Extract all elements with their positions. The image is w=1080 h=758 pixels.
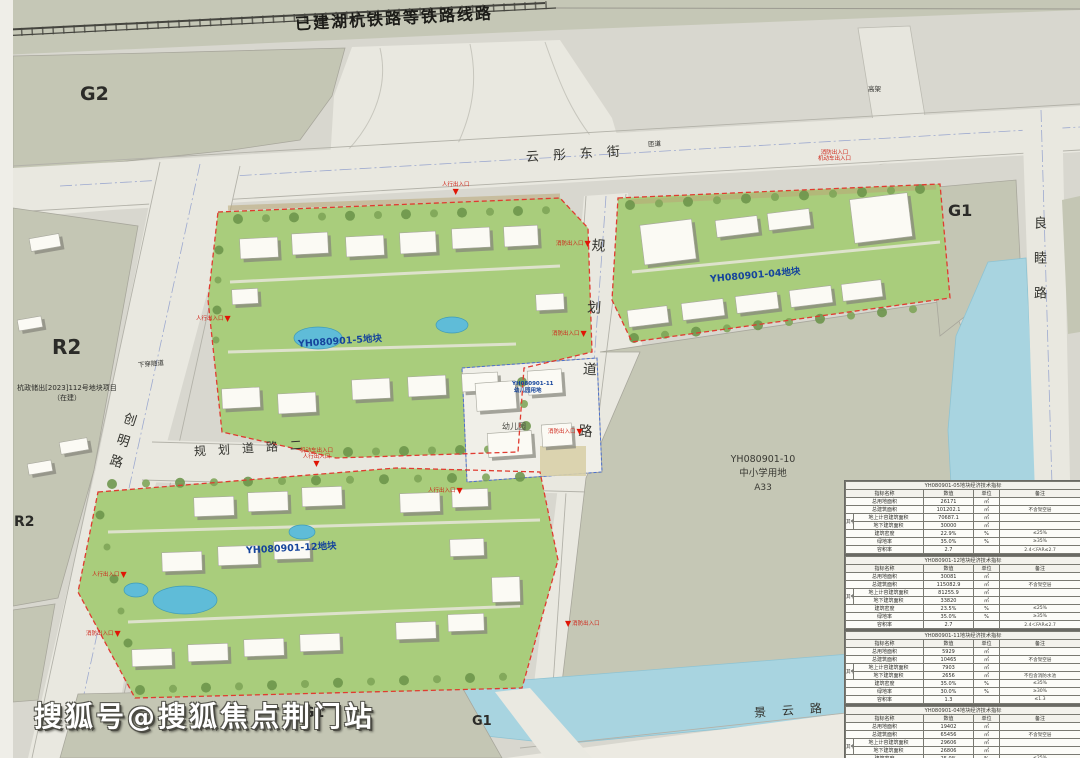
tree — [909, 305, 917, 313]
school-code-label: YH080901-10 — [703, 455, 823, 466]
r2-project-name: 杭政储出[2023]112号地块项目 — [4, 384, 130, 392]
table-cell: 总建筑面积 — [846, 731, 924, 739]
table-cell: 数值 — [924, 565, 974, 573]
table-cell: 地上计容建筑面积 — [854, 589, 924, 597]
table-cell: 总建筑面积 — [846, 656, 924, 664]
table-cell: 地上计容建筑面积 — [854, 664, 924, 672]
table-cell: 35.0% — [924, 680, 974, 688]
building — [188, 643, 229, 661]
table-cell: 绿地率 — [846, 613, 924, 621]
table-cell — [974, 621, 1000, 629]
tree — [318, 213, 326, 221]
building — [400, 492, 441, 512]
table-cell: 不含架空层 — [1000, 581, 1080, 589]
tree — [372, 448, 380, 456]
table-cell: 7903 — [924, 664, 974, 672]
table-cell: 19402 — [924, 723, 974, 731]
tree — [346, 476, 354, 484]
table-cell: 2.7 — [924, 546, 974, 554]
school-use-label: 中小学用地 — [703, 469, 823, 480]
tree — [741, 194, 751, 204]
table-cell — [1000, 597, 1080, 605]
table-cell: 建筑密度 — [846, 680, 924, 688]
table-cell: 数值 — [924, 490, 974, 498]
table-cell: ㎡ — [974, 664, 1000, 672]
tree — [655, 199, 663, 207]
tree — [399, 446, 409, 456]
tree — [683, 197, 693, 207]
entrance-marker-fire: 消防出入口 ▼ — [552, 330, 587, 338]
table-cell: 2.7 — [924, 621, 974, 629]
tree — [414, 475, 422, 483]
road-label-elevated: 高架 — [868, 86, 881, 93]
table-cell: 地下建筑面积 — [854, 672, 924, 680]
table-cell: % — [974, 755, 1000, 758]
entrance-marker-fire: 消防出入口 ▼ — [556, 240, 591, 248]
tree — [482, 473, 490, 481]
table-cell: 总建筑面积 — [846, 506, 924, 514]
building — [450, 538, 485, 556]
indicator-table: YH080901-04地块经济技术指标指标名称数值单位备注总用地面积19402㎡… — [845, 706, 1080, 758]
table-cell: 25.0% — [924, 755, 974, 758]
road-label-ramp: 匝道 — [648, 141, 661, 149]
table-cell: 单位 — [974, 640, 1000, 648]
table-cell: ≥35% — [1000, 613, 1080, 621]
building — [396, 621, 437, 639]
tree — [713, 196, 721, 204]
table-cell — [1000, 747, 1080, 755]
table-cell: ㎡ — [974, 522, 1000, 530]
table-cell: ㎡ — [974, 573, 1000, 581]
table-cell: 绿地率 — [846, 538, 924, 546]
table-cell: ㎡ — [974, 656, 1000, 664]
pond — [436, 317, 468, 333]
table-cell — [1000, 664, 1080, 672]
table-cell: 绿地率 — [846, 688, 924, 696]
tree — [857, 187, 867, 197]
tree — [847, 312, 855, 320]
tree — [345, 211, 355, 221]
r2-project-status: （在建） — [4, 394, 130, 402]
tree — [96, 511, 105, 520]
indicator-tables-panel: YH080901-05地块经济技术指标指标名称数值单位备注总用地面积26171㎡… — [845, 481, 1080, 758]
tree — [486, 208, 494, 216]
table-cell: 指标名称 — [846, 490, 924, 498]
pond — [124, 583, 148, 597]
table-cell: ㎡ — [974, 506, 1000, 514]
table-cell: ㎡ — [974, 731, 1000, 739]
table-cell: % — [974, 530, 1000, 538]
entrance-marker-fire: ▼ 消防出入口 — [565, 620, 600, 628]
tree — [785, 318, 793, 326]
table-cell — [1000, 498, 1080, 506]
tree — [374, 211, 382, 219]
table-cell: 指标名称 — [846, 640, 924, 648]
table-cell: 不包含消防水池 — [1000, 672, 1080, 680]
table-cell: 单位 — [974, 715, 1000, 723]
entrance-marker-fire: 消防出入口 ▼ — [548, 428, 583, 436]
table-cell: % — [974, 613, 1000, 621]
table-cell: 容积率 — [846, 621, 924, 629]
tree — [401, 209, 411, 219]
tree — [428, 447, 436, 455]
table-cell: ㎡ — [974, 672, 1000, 680]
building — [278, 392, 317, 414]
table-cell: 不含架空层 — [1000, 731, 1080, 739]
tree — [289, 212, 299, 222]
table-cell: 容积率 — [846, 696, 924, 704]
table-cell: 地上计容建筑面积 — [854, 739, 924, 747]
table-cell: 备注 — [1000, 490, 1080, 498]
tree — [515, 472, 525, 482]
tree — [124, 639, 133, 648]
building — [346, 235, 385, 257]
tree — [379, 474, 389, 484]
table-cell: 1.3 — [924, 696, 974, 704]
site-plan-canvas: 已建湖杭铁路等铁路线路 G2 R2 杭政储出[2023]112号地块项目 （在建… — [0, 0, 1080, 758]
building — [408, 375, 447, 397]
table-cell: 指标名称 — [846, 715, 924, 723]
building — [475, 381, 517, 412]
zone-label-r2-lower: R2 — [14, 514, 35, 530]
school-zone-label: A33 — [703, 483, 823, 493]
tree — [771, 193, 779, 201]
tree — [457, 208, 467, 218]
table-cell: 建筑密度 — [846, 530, 924, 538]
tree — [262, 214, 270, 222]
building — [399, 231, 436, 254]
table-cell: 65456 — [924, 731, 974, 739]
tree — [107, 479, 117, 489]
tree — [142, 479, 150, 487]
entrance-marker-pedestrian: 人行出入口 ▼ — [92, 571, 127, 579]
tree — [213, 337, 220, 344]
table-cell: 101202.1 — [924, 506, 974, 514]
indicator-table: YH080901-05地块经济技术指标指标名称数值单位备注总用地面积26171㎡… — [845, 481, 1080, 554]
table-cell: ㎡ — [974, 498, 1000, 506]
table-cell: ㎡ — [974, 514, 1000, 522]
table-cell: 不含架空层 — [1000, 656, 1080, 664]
table-cell: 22.9% — [924, 530, 974, 538]
table-cell: 总用地面积 — [846, 648, 924, 656]
tree — [499, 673, 507, 681]
parcel-label-11-use: 幼儿园用地 — [514, 388, 542, 394]
table-cell: 10465 — [924, 656, 974, 664]
table-cell: 总建筑面积 — [846, 581, 924, 589]
table-cell: ㎡ — [974, 589, 1000, 597]
pond — [153, 586, 217, 614]
building — [352, 378, 391, 400]
table-cell: 其中 — [846, 664, 854, 680]
table-cell: ≤25% — [1000, 605, 1080, 613]
table-cell: 容积率 — [846, 546, 924, 554]
table-cell: 总用地面积 — [846, 723, 924, 731]
pond — [289, 525, 315, 539]
tree — [465, 673, 475, 683]
indicator-table: YH080901-11地块经济技术指标指标名称数值单位备注总用地面积5929㎡总… — [845, 631, 1080, 704]
building — [244, 638, 285, 656]
zone-label-g2: G2 — [80, 84, 109, 106]
table-cell: 数值 — [924, 640, 974, 648]
entrance-marker-fire: 消防出入口 ▼ — [86, 630, 121, 638]
zone-label-g1-right: G1 — [948, 202, 972, 220]
table-cell: ≤35% — [1000, 680, 1080, 688]
table-cell — [1000, 514, 1080, 522]
table-cell: 建筑密度 — [846, 605, 924, 613]
tree — [278, 477, 286, 485]
table-cell — [1000, 739, 1080, 747]
table-cell: % — [974, 538, 1000, 546]
table-cell: 30081 — [924, 573, 974, 581]
entrance-arrow-icon: ▼ — [453, 188, 459, 196]
building — [291, 232, 328, 255]
table-cell: ≤25% — [1000, 530, 1080, 538]
building — [536, 293, 565, 310]
table-cell: ≤25% — [1000, 755, 1080, 758]
tree — [135, 685, 145, 695]
tree — [243, 477, 253, 487]
zone-label-r2-upper: R2 — [52, 336, 81, 359]
table-cell: YH080901-04地块经济技术指标 — [846, 707, 1080, 715]
tree — [267, 680, 277, 690]
table-cell: 单位 — [974, 490, 1000, 498]
building — [640, 219, 696, 265]
table-cell: YH080901-11地块经济技术指标 — [846, 632, 1080, 640]
tree — [829, 190, 837, 198]
tree — [333, 678, 343, 688]
table-cell: 23.5% — [924, 605, 974, 613]
table-cell: 其中 — [846, 739, 854, 755]
table-cell: ㎡ — [974, 597, 1000, 605]
building — [248, 491, 289, 511]
building — [448, 613, 485, 631]
tree — [301, 680, 309, 688]
table-cell — [1000, 648, 1080, 656]
table-cell: 总用地面积 — [846, 573, 924, 581]
table-cell: 70687.1 — [924, 514, 974, 522]
building — [194, 496, 235, 516]
building — [850, 193, 913, 244]
watermark: 搜狐号@搜狐焦点荆门站 — [34, 695, 375, 735]
tree — [233, 214, 243, 224]
tree — [215, 246, 224, 255]
table-cell: ㎡ — [974, 581, 1000, 589]
table-cell: % — [974, 680, 1000, 688]
building — [452, 227, 491, 249]
tree — [169, 685, 177, 693]
table-cell: ≤1.3 — [1000, 696, 1080, 704]
tree — [799, 190, 809, 200]
table-cell — [1000, 573, 1080, 581]
table-cell: 地下建筑面积 — [854, 747, 924, 755]
table-cell — [1000, 589, 1080, 597]
tree — [447, 473, 457, 483]
table-cell: 备注 — [1000, 715, 1080, 723]
table-cell — [1000, 723, 1080, 731]
table-cell: 地上计容建筑面积 — [854, 514, 924, 522]
tree — [118, 608, 125, 615]
tree — [430, 209, 438, 217]
indicator-table: YH080901-12地块经济技术指标指标名称数值单位备注总用地面积30081㎡… — [845, 556, 1080, 629]
table-cell: 单位 — [974, 565, 1000, 573]
entrance-marker-fire-vehicle: 消防出入口 机动车出入口 — [818, 150, 851, 162]
table-cell: ㎡ — [974, 747, 1000, 755]
building — [302, 486, 343, 506]
table-cell: 其中 — [846, 514, 854, 530]
table-cell: % — [974, 605, 1000, 613]
parcel-label-11-code: YH080901-11 — [512, 381, 553, 387]
building — [232, 288, 259, 304]
tree — [542, 206, 550, 214]
tree — [215, 277, 222, 284]
building — [162, 551, 203, 571]
tree — [691, 327, 701, 337]
table-cell: 指标名称 — [846, 565, 924, 573]
image-left-margin — [0, 0, 13, 758]
table-cell: 建筑密度 — [846, 755, 924, 758]
tree — [175, 478, 185, 488]
table-cell — [1000, 522, 1080, 530]
table-cell: 81255.9 — [924, 589, 974, 597]
table-cell: ≥35% — [1000, 538, 1080, 546]
table-cell: 地下建筑面积 — [854, 597, 924, 605]
tree — [399, 675, 409, 685]
table-cell: 地下建筑面积 — [854, 522, 924, 530]
table-cell: ≥30% — [1000, 688, 1080, 696]
tree — [877, 307, 887, 317]
table-cell: YH080901-12地块经济技术指标 — [846, 557, 1080, 565]
table-cell: 30.0% — [924, 688, 974, 696]
table-cell: 备注 — [1000, 640, 1080, 648]
tree — [625, 200, 635, 210]
tree — [311, 475, 321, 485]
table-cell: 数值 — [924, 715, 974, 723]
table-cell: 5929 — [924, 648, 974, 656]
table-cell: ㎡ — [974, 648, 1000, 656]
tree — [433, 675, 441, 683]
entrance-marker-pedestrian: 人行出入口 ▼ — [196, 315, 231, 323]
kindergarten-label: 幼儿园 — [502, 422, 526, 431]
table-cell — [974, 696, 1000, 704]
road-label-liangmu: 良睦路 — [1030, 216, 1045, 321]
building — [503, 225, 538, 247]
table-cell: YH080901-05地块经济技术指标 — [846, 482, 1080, 490]
table-cell: % — [974, 688, 1000, 696]
building — [222, 387, 261, 409]
table-cell: 总用地面积 — [846, 498, 924, 506]
building — [240, 237, 279, 259]
table-cell: 其中 — [846, 589, 854, 605]
entrance-marker-vehicle: 机动车出入口 人行出入口 ▼ — [300, 448, 333, 468]
building — [300, 633, 341, 651]
table-cell — [974, 546, 1000, 554]
building — [132, 648, 173, 666]
tree — [343, 447, 353, 457]
table-cell: 备注 — [1000, 565, 1080, 573]
tree — [104, 544, 111, 551]
table-cell: 35.0% — [924, 613, 974, 621]
tree — [513, 206, 523, 216]
table-cell: 33820 — [924, 597, 974, 605]
table-cell: 115082.9 — [924, 581, 974, 589]
building — [492, 577, 521, 603]
table-cell: 29606 — [924, 739, 974, 747]
table-cell: 35.0% — [924, 538, 974, 546]
building — [487, 430, 533, 457]
tree — [887, 187, 895, 195]
table-cell: 不含架空层 — [1000, 506, 1080, 514]
tree — [367, 678, 375, 686]
tree — [213, 306, 222, 315]
tree — [201, 683, 211, 693]
table-cell: ㎡ — [974, 723, 1000, 731]
zone-label-g1-bottom-mid: G1 — [472, 715, 492, 730]
entrance-marker-pedestrian: 人行出入口 ▼ — [428, 487, 463, 495]
tree — [235, 682, 243, 690]
table-cell: 2.4＜FAR≤2.7 — [1000, 621, 1080, 629]
table-cell: ㎡ — [974, 739, 1000, 747]
table-cell: 2.4＜FAR≤2.7 — [1000, 546, 1080, 554]
table-cell: 26171 — [924, 498, 974, 506]
entrance-marker-pedestrian: 人行出入口 ▼ — [442, 182, 470, 196]
table-cell: 2656 — [924, 672, 974, 680]
table-cell: 26806 — [924, 747, 974, 755]
table-cell: 30000 — [924, 522, 974, 530]
